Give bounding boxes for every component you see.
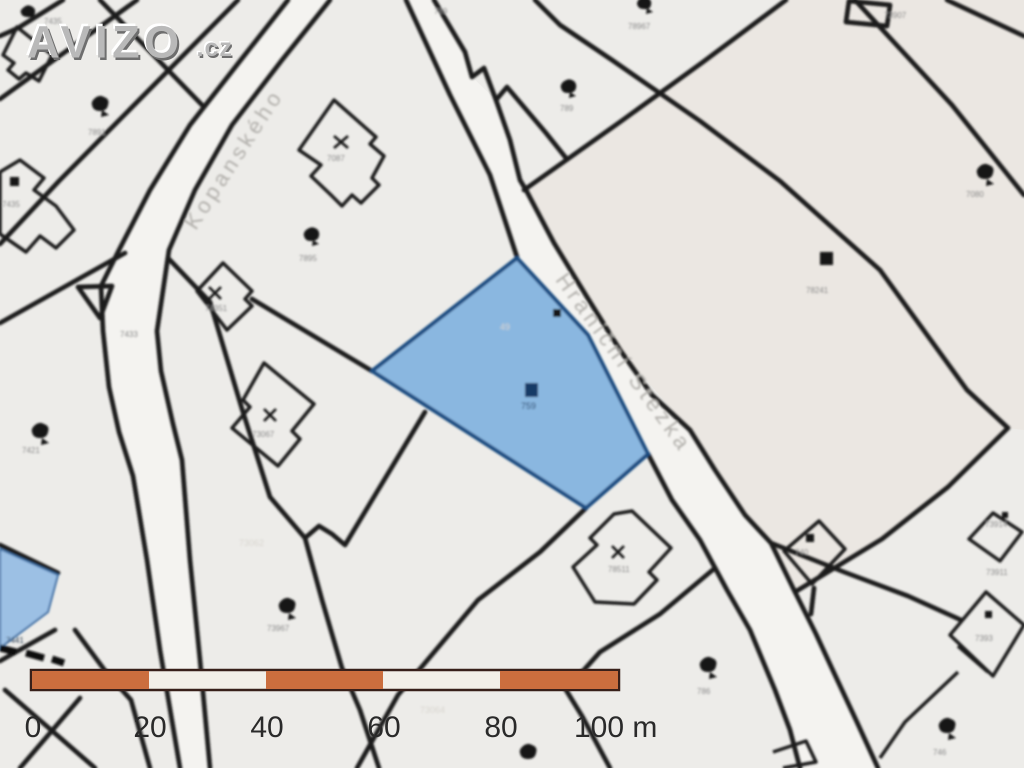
svg-text:AVIZO: AVIZO [27,17,184,68]
svg-text:789: 789 [434,7,448,16]
svg-text:7433: 7433 [120,330,138,339]
svg-text:.cz: .cz [197,34,233,62]
svg-text:7895: 7895 [299,254,317,263]
svg-text:7435: 7435 [2,200,20,209]
svg-text:60: 60 [367,711,400,744]
svg-text:80: 80 [484,711,517,744]
svg-text:7087: 7087 [327,154,345,163]
svg-text:7393: 7393 [975,634,993,643]
svg-text:20: 20 [133,711,166,744]
svg-text:73067: 73067 [252,430,275,439]
svg-text:7080: 7080 [966,190,984,199]
svg-text:73064: 73064 [420,705,445,715]
svg-text:40: 40 [250,711,283,744]
svg-text:0: 0 [25,711,42,744]
svg-text:78967: 78967 [628,22,651,31]
svg-text:759: 759 [521,401,536,411]
svg-text:7891: 7891 [88,128,106,137]
svg-text:789: 789 [560,104,574,113]
svg-text:746: 746 [933,748,947,757]
svg-text:786: 786 [697,687,711,696]
svg-text:73062: 73062 [239,538,264,548]
svg-text:73967: 73967 [267,624,290,633]
svg-text:78241: 78241 [806,286,829,295]
svg-text:74351: 74351 [205,304,228,313]
svg-text:740: 740 [795,548,809,557]
svg-text:49: 49 [500,322,510,332]
svg-text:7441: 7441 [6,636,24,645]
svg-text:73914: 73914 [985,520,1008,529]
svg-text:73907: 73907 [884,11,907,20]
svg-text:78511: 78511 [608,565,630,574]
svg-text:100 m: 100 m [574,711,657,744]
svg-text:7421: 7421 [22,446,40,455]
svg-text:73911: 73911 [986,568,1008,577]
